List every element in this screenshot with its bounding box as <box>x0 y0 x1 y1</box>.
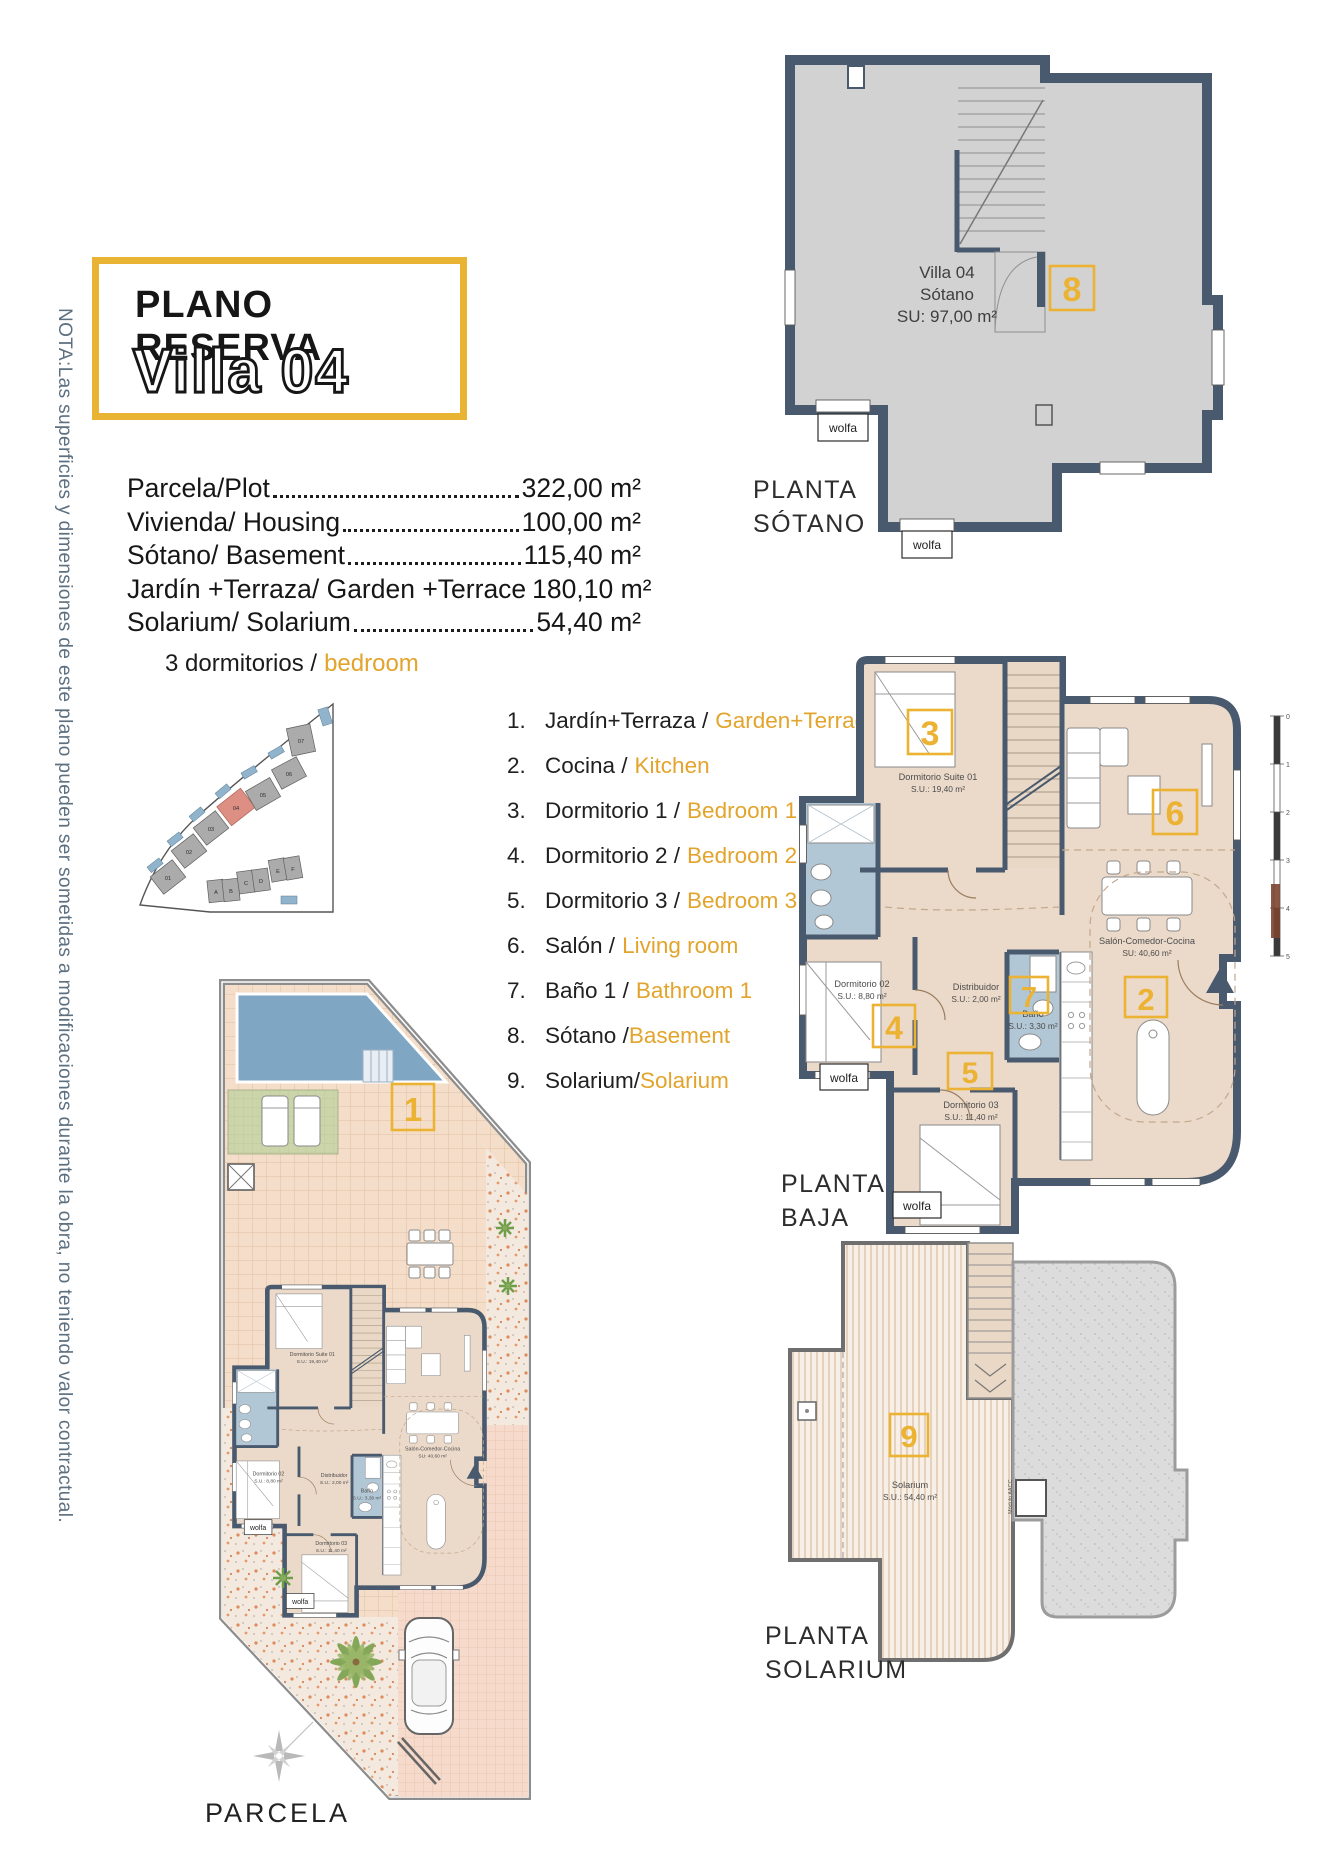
svg-text:4: 4 <box>1286 906 1290 913</box>
svg-text:S.U.: 54,40 m²: S.U.: 54,40 m² <box>883 1492 937 1502</box>
planta-solarium-label-1: PLANTA <box>765 1622 869 1650</box>
svg-text:8: 8 <box>1063 271 1082 309</box>
basement-outline <box>790 60 1218 527</box>
basement-plan: Villa 04 Sótano SU: 97,00 m² 8 wolfa wol… <box>753 60 1224 558</box>
solarium-room-label: Solarium <box>892 1480 929 1490</box>
lawn-area <box>228 1090 338 1154</box>
car-mirror <box>453 1650 459 1660</box>
planta-solarium-label-2: SOLARIUM <box>765 1656 908 1684</box>
outdoor-shower <box>228 1164 254 1190</box>
parcela-label: PARCELA <box>205 1798 350 1828</box>
basement-window <box>1100 462 1145 474</box>
svg-text:wolfa: wolfa <box>912 538 941 552</box>
svg-text:3: 3 <box>1286 858 1290 865</box>
svg-text:1: 1 <box>404 1091 422 1128</box>
sun-lounger <box>294 1096 320 1146</box>
solarium-plan: Módulo AACC 9 Solarium S.U.: 54,40 m² PL… <box>765 1243 1187 1684</box>
svg-text:2: 2 <box>1286 810 1290 817</box>
svg-text:3: 3 <box>921 715 940 753</box>
svg-text:SU: 97,00 m²: SU: 97,00 m² <box>897 307 997 326</box>
shrub-icon <box>273 1568 293 1588</box>
svg-text:1: 1 <box>1286 762 1290 769</box>
svg-text:5: 5 <box>962 1057 979 1090</box>
basement-window <box>1212 330 1224 385</box>
wall-notch <box>848 66 864 88</box>
svg-text:4: 4 <box>885 1010 903 1046</box>
planta-baja-label-2: BAJA <box>781 1204 850 1232</box>
deck-access-door <box>798 1402 816 1420</box>
car-top-view <box>399 1618 459 1734</box>
svg-text:7: 7 <box>1021 982 1037 1014</box>
scale-logo-mark <box>1271 884 1280 938</box>
svg-text:2: 2 <box>1137 982 1154 1017</box>
vent-wolfa-sotano-2: wolfa <box>900 519 954 558</box>
roof-area <box>1013 1262 1187 1617</box>
ground-floor-plan: 3 6 4 7 5 2 PLANTA BAJA <box>781 657 1241 1234</box>
svg-text:Sótano: Sótano <box>920 285 974 304</box>
plan-sheet: NOTA:Las superficies y dimensiones de es… <box>0 0 1334 1860</box>
plot-plan: 1 <box>205 982 528 1828</box>
scale-bar: 0 1 2 3 4 5 <box>1270 714 1290 961</box>
svg-text:5: 5 <box>1286 954 1290 961</box>
compass-star-icon <box>253 1722 313 1782</box>
solarium-stairs <box>968 1243 1013 1398</box>
basement-window <box>785 270 795 325</box>
svg-text:Villa 04: Villa 04 <box>919 263 974 282</box>
car-mirror <box>399 1650 405 1660</box>
outdoor-dining-set <box>407 1230 453 1278</box>
ac-module: Módulo AACC <box>1008 1479 1046 1516</box>
palm-tree-icon <box>330 1636 382 1688</box>
floor-plans: wolfa wolfa Dormitorio Suite 01 S.U.: 19… <box>0 0 1334 1860</box>
svg-text:wolfa: wolfa <box>828 421 857 435</box>
vent-wolfa-sotano-1: wolfa <box>816 400 870 441</box>
sun-lounger <box>262 1096 288 1146</box>
svg-text:9: 9 <box>900 1419 917 1454</box>
svg-text:0: 0 <box>1286 714 1290 721</box>
svg-text:Módulo AACC: Módulo AACC <box>1008 1479 1014 1514</box>
svg-text:6: 6 <box>1166 795 1185 833</box>
planta-sotano-label-2: SÓTANO <box>753 509 866 538</box>
planta-sotano-label-1: PLANTA <box>753 476 857 504</box>
planta-baja-label-1: PLANTA <box>781 1170 885 1198</box>
